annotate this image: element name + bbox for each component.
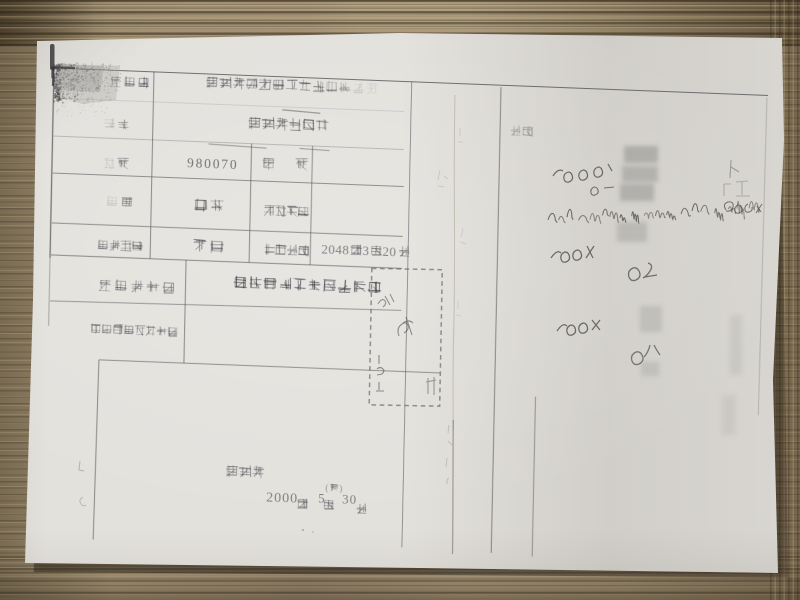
svg-text:(: ( <box>325 482 328 492</box>
svg-text:2000: 2000 <box>266 490 298 506</box>
svg-text:20: 20 <box>382 244 396 260</box>
svg-text:3: 3 <box>362 243 369 258</box>
svg-text:5: 5 <box>318 490 325 505</box>
svg-text:980070: 980070 <box>187 155 239 172</box>
svg-text:30: 30 <box>342 491 357 507</box>
svg-text:2048: 2048 <box>321 241 349 257</box>
